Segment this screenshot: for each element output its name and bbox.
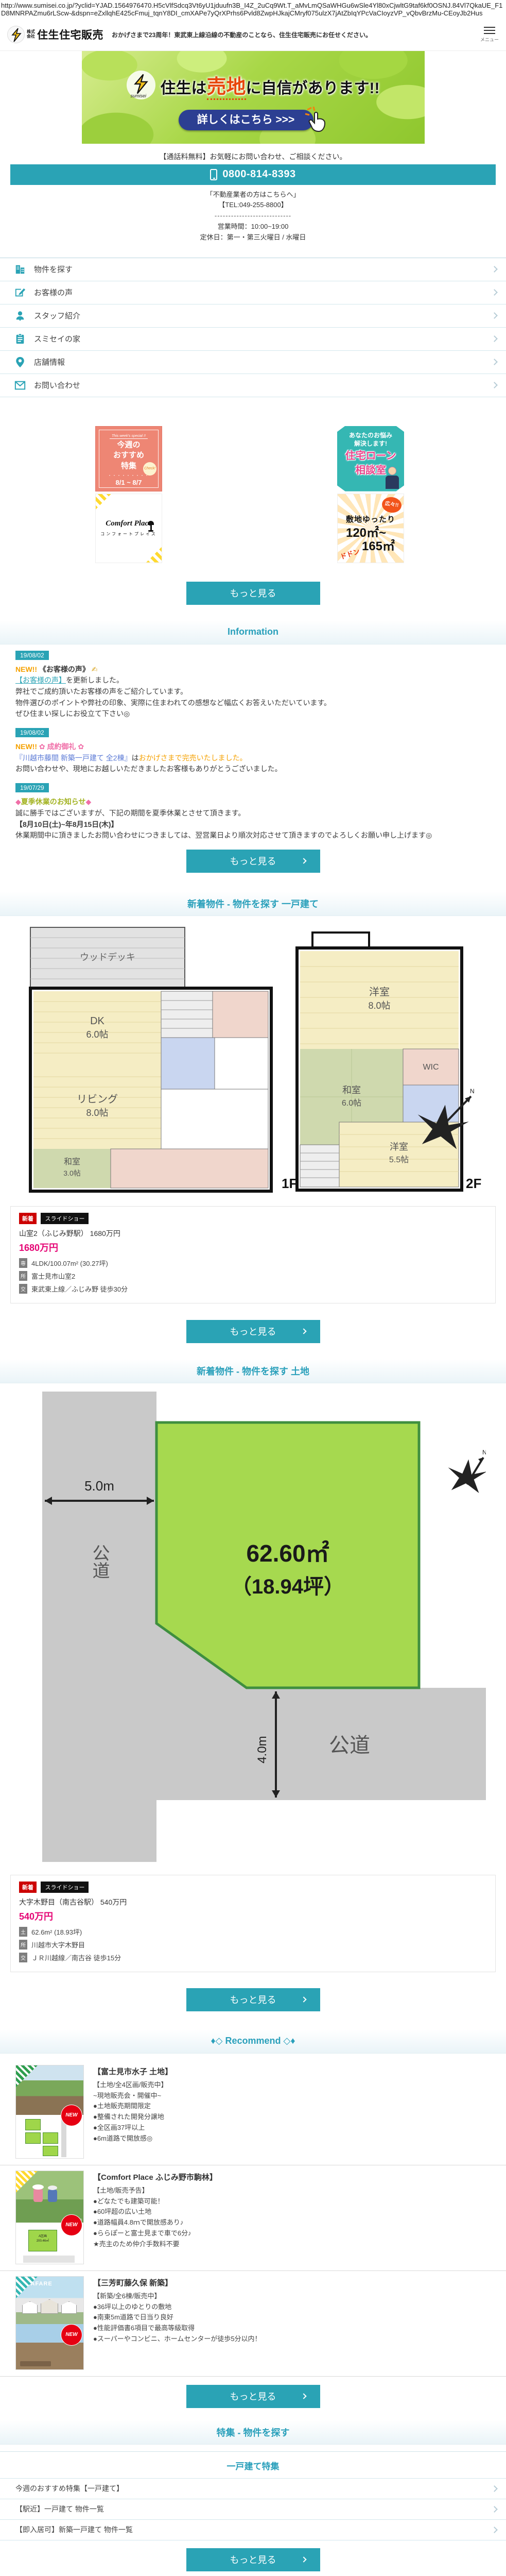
svg-text:4.0m: 4.0m	[255, 1736, 269, 1763]
news-title-line: ◆夏季休業のお知らせ◆	[15, 796, 491, 808]
property-location-line: 所川越市大字木野目	[19, 1940, 487, 1950]
person-pin-icon	[14, 310, 26, 321]
hand-cursor-icon	[304, 107, 327, 136]
comfort-place-kana: コンフォートプレイス	[100, 531, 157, 537]
weekly-line1: 今週の	[99, 440, 158, 450]
main-menu: 物件を探す お客様の声 スタッフ紹介 スミセイの家 店舗情報 お問い合わせ	[0, 258, 506, 397]
recommend-line: ★売主のため仲介手数料不要	[93, 2239, 217, 2250]
svg-text:和室: 和室	[63, 1157, 80, 1166]
house-feature-subheading: 一戸建て特集	[0, 2459, 506, 2472]
phone-call-bar[interactable]: 0800-814-8393	[10, 164, 496, 185]
bolt-logo-icon	[7, 26, 25, 43]
svg-text:（18.94坪）: （18.94坪）	[231, 1575, 344, 1598]
recommend-line: ●整備された開発分譲地	[93, 2112, 172, 2123]
customer-voice-link[interactable]: 【お客様の声】	[15, 676, 66, 684]
recommend-heading-band: ♦◇ Recommend ◇♦	[0, 2029, 506, 2054]
news-body: ぜひ住まい探しにお役立て下さい◎	[15, 708, 491, 720]
lot-size1: 120㎡~	[338, 527, 394, 540]
banner-weekly-special[interactable]: This week's special !! 今週の おすすめ 特集 Check…	[95, 426, 162, 492]
svg-text:1F: 1F	[282, 1176, 297, 1191]
chevron-right-icon	[491, 2527, 498, 2533]
svg-text:WIC: WIC	[423, 1063, 439, 1072]
new-house-heading: 新着物件 - 物件を探す 一戸建て	[187, 897, 319, 910]
recommend-thumbnail: image photo A区画200.46㎡ NEW	[15, 2171, 84, 2264]
news-date-badge: 19/07/29	[15, 783, 49, 792]
svg-text:5.0m: 5.0m	[84, 1478, 114, 1494]
chevron-right-icon	[491, 335, 498, 342]
news-item: 19/08/02 NEW!! ✿ 成約御礼 ✿ 『川越市藤間 新築一戸建て 全2…	[15, 728, 491, 775]
page: http://www.sumisei.co.jp/?yclid=YJAD.156…	[0, 0, 506, 2576]
svg-text:6.0帖: 6.0帖	[341, 1098, 361, 1108]
recommend-line: ~現地販売会・開催中~	[93, 2091, 172, 2102]
recommend-line: ●36坪以上のゆとりの敷地	[93, 2302, 261, 2313]
chevron-right-icon	[491, 359, 498, 365]
property-title: 山室2（ふじみ野駅） 1680万円	[19, 1228, 487, 1239]
lamp-icon	[147, 521, 154, 532]
feature-heading-band: 特集 - 物件を探す	[0, 2420, 506, 2445]
weekly-special-inner: This week's special !! 今週の おすすめ 特集 Check…	[99, 430, 159, 488]
feature-heading: 特集 - 物件を探す	[217, 2426, 290, 2439]
company-logo[interactable]: 株式会社 住生住宅販売	[7, 26, 103, 43]
recommend-line: ●スーパーやコンビニ、ホームセンターが徒歩5分以内！	[93, 2334, 261, 2345]
svg-text:6.0帖: 6.0帖	[86, 1029, 108, 1040]
clipboard-icon	[14, 333, 26, 345]
property-access-line: 交ＪＲ川越線／南古谷 徒歩15分	[19, 1953, 487, 1962]
building-icon	[14, 264, 26, 275]
news-date-badge: 19/08/02	[15, 651, 49, 660]
menu-item-contact[interactable]: お問い合わせ	[0, 374, 506, 397]
loan-top-text: あなたのお悩み解決します!	[337, 431, 404, 448]
header-tagline: おかげさまで23周年！東武東上線沿線の不動産のことなら、住生住宅販売にお任せくだ…	[112, 30, 372, 39]
property-price: 1680万円	[19, 1241, 487, 1254]
hero-title: 住生は売地に自信があります!!	[161, 71, 380, 99]
more-button-land[interactable]: もっと見る	[186, 1988, 320, 2011]
recommend-title: 【富士見市水子 土地】	[93, 2066, 172, 2077]
hamburger-menu-button[interactable]: メニュー	[480, 27, 499, 43]
svg-text:3.0帖: 3.0帖	[63, 1169, 80, 1177]
new-starburst-badge: NEW	[63, 2216, 80, 2234]
svg-text:2F: 2F	[466, 1176, 481, 1191]
weekly-line2: おすすめ	[99, 451, 158, 461]
news-body: 弊社でご成約頂いたお客様の声をご紹介しています。	[15, 686, 491, 698]
more-button-recommend[interactable]: もっと見る	[186, 2385, 320, 2408]
svg-text:8.0帖: 8.0帖	[86, 1108, 108, 1118]
svg-text:N: N	[482, 1449, 486, 1456]
chevron-right-icon	[301, 1997, 306, 2003]
chevron-right-icon	[491, 266, 498, 273]
recommend-text: 【三芳町藤久保 新築】 【新築/全6棟/販売中】 ●36坪以上のゆとりの敷地 ●…	[93, 2276, 261, 2370]
menu-item-staff[interactable]: スタッフ紹介	[0, 304, 506, 328]
pencil-emoji: ✍	[92, 665, 98, 673]
svg-text:62.60㎡: 62.60㎡	[246, 1540, 329, 1567]
feature-row-move-in-ready[interactable]: 【即入居可】新築一戸建て 物件一覧	[0, 2520, 506, 2540]
recommend-line: 【土地/販売予告】	[93, 2185, 217, 2196]
chevron-right-icon	[301, 2394, 306, 2399]
recommend-title: 【三芳町藤久保 新築】	[93, 2277, 261, 2288]
svg-text:5.5帖: 5.5帖	[389, 1155, 408, 1164]
property-badges: 新着 スライドショー	[19, 1882, 487, 1893]
svg-text:8.0帖: 8.0帖	[368, 1001, 390, 1011]
dodon-label: ドドン	[339, 546, 361, 561]
lot-size2: 165㎡	[353, 540, 404, 553]
feature-row-weekly-house[interactable]: 今週のおすすめ特集【一戸建て】	[0, 2479, 506, 2499]
hero-cta-button[interactable]: 詳しくはこちら >>>	[179, 110, 313, 130]
property-title: 大字木野目（南古谷駅） 540万円	[19, 1897, 487, 1907]
recommend-line: ●全区画37坪以上	[93, 2123, 172, 2133]
recommend-text: 【Comfort Place ふじみ野市駒林】 【土地/販売予告】 ●どなたでも…	[93, 2171, 217, 2264]
closure-period: 【8月10日(土)~年8月15日(木)】	[15, 819, 491, 831]
property-card-house[interactable]: 新着 スライドショー 山室2（ふじみ野駅） 1680万円 1680万円 専4LD…	[10, 1206, 496, 1303]
location-tag-icon: 所	[19, 1940, 27, 1950]
more-button-information[interactable]: もっと見る	[186, 850, 320, 873]
banner-large-lot[interactable]: 広々!! 敷地ゆったり 120㎡~ 165㎡ ドドン	[337, 494, 404, 563]
svg-text:リビング: リビング	[77, 1093, 118, 1105]
news-title-line: NEW!! 《お客様の声》 ✍	[15, 664, 491, 675]
recommend-line: ●性能評価書6項目で最高等級取得	[93, 2323, 261, 2334]
check-bubble: Check!	[143, 462, 156, 476]
news-list: 19/08/02 NEW!! 《お客様の声》 ✍ 【お客様の声】を更新しました。…	[0, 645, 506, 841]
feature-row-near-station[interactable]: 【駅近】一戸建て 物件一覧	[0, 2499, 506, 2520]
chevron-right-icon	[491, 2485, 498, 2492]
logo-name-label: 住生住宅販売	[37, 27, 103, 42]
phone-notes: 「不動産業者の方はこちらへ」 【TEL:049-255-8800】 ------…	[0, 190, 506, 243]
news-body: 誠に勝手ではございますが、下記の期間を夏季休業とさせて頂きます。	[15, 808, 491, 819]
svg-text:洋室: 洋室	[390, 1142, 408, 1152]
pencil-square-icon	[14, 287, 26, 298]
phone-free-note: 【通話料無料】お気軽にお問い合わせ、ご相談ください。	[0, 151, 506, 162]
menu-item-label: 店舗情報	[34, 357, 65, 367]
land-tag-icon: 土	[19, 1927, 27, 1937]
url-text: http://www.sumisei.co.jp/?yclid=YJAD.156…	[0, 0, 506, 19]
menu-item-label: 物件を探す	[34, 264, 73, 275]
hero-title-row: sumisei 住生は売地に自信があります!!	[82, 71, 425, 99]
phone-number: 0800-814-8393	[222, 168, 295, 180]
hamburger-icon	[484, 27, 495, 34]
recommend-thumbnail: NEW	[15, 2065, 84, 2159]
menu-item-shop-info[interactable]: 店舗情報	[0, 351, 506, 374]
yellow-stripe-corner	[96, 494, 111, 510]
svg-text:DK: DK	[90, 1015, 104, 1027]
property-card-land[interactable]: 新着 スライドショー 大字木野目（南古谷駅） 540万円 540万円 土62.6…	[10, 1875, 496, 1972]
news-link-line: 【お客様の声】を更新しました。	[15, 675, 491, 686]
weekly-period: 8/1 ~ 8/7	[99, 479, 158, 486]
svg-text:公道: 公道	[90, 1544, 109, 1579]
svg-text:洋室: 洋室	[369, 986, 390, 998]
businessman-illustration	[385, 467, 400, 489]
hamburger-label: メニュー	[480, 36, 499, 43]
hero-brand-label: sumisei	[131, 93, 147, 98]
news-item: 19/08/02 NEW!! 《お客様の声》 ✍ 【お客様の声】を更新しました。…	[15, 651, 491, 720]
new-badge: 新着	[19, 1882, 37, 1893]
recommend-line: ●6m道路で開放感◎	[93, 2133, 172, 2144]
recommend-line: ●どなたでも建築可能！	[93, 2196, 217, 2207]
agent-tel: 【TEL:049-255-8800】	[0, 200, 506, 211]
smartphone-icon	[210, 169, 217, 180]
recommend-line: ●60坪超の広い土地	[93, 2207, 217, 2217]
chevron-right-icon	[491, 312, 498, 319]
property-access-line: 交東武東上線／ふじみ野 徒歩30分	[19, 1284, 487, 1294]
location-tag-icon: 所	[19, 1271, 27, 1281]
chevron-right-icon	[301, 2557, 306, 2563]
new-house-heading-band: 新着物件 - 物件を探す 一戸建て	[0, 892, 506, 916]
hero-title-highlight: 売地	[207, 76, 246, 100]
logo-corp-label: 株式会社	[27, 30, 36, 39]
new-starburst-badge: NEW	[63, 2326, 80, 2344]
new-land-heading: 新着物件 - 物件を探す 土地	[197, 1364, 309, 1378]
recommend-thumbnail: GRAFARE NEW	[15, 2276, 84, 2370]
compass-icon: N	[446, 1449, 486, 1494]
more-button-house[interactable]: もっと見る	[186, 1320, 320, 1343]
information-heading-band: Information	[0, 620, 506, 645]
lot-title: 敷地ゆったり	[338, 514, 404, 524]
news-body: 物件選びのポイントや弊社の印象、実際に住まわれての感想など幅広くお答えいただいて…	[15, 698, 491, 709]
recommend-line: ●道路幅員4.8ｍで開放感あり♪	[93, 2217, 217, 2228]
news-body: お問い合わせや、現地にお越しいただきましたお客様もありがとうございました。	[15, 764, 491, 775]
svg-text:公道: 公道	[329, 1734, 370, 1757]
recommend-item-fujikubo[interactable]: GRAFARE NEW 【三芳町藤久保 新築】 【新築/全6棟/販売中】 ●36…	[0, 2271, 506, 2377]
property-badges: 新着 スライドショー	[19, 1213, 487, 1224]
dashes-divider: ----------------------------	[0, 211, 506, 222]
ribbon-label: This week's special !!	[110, 434, 148, 439]
recommend-title: 【Comfort Place ふじみ野市駒林】	[93, 2172, 217, 2182]
banner-housing-loan[interactable]: あなたのお悩み解決します! 住宅ローン 相談室	[337, 426, 404, 492]
recommend-item-komabayashi[interactable]: image photo A区画200.46㎡ NEW 【Comfort Plac…	[0, 2165, 506, 2271]
menu-item-customer-voice[interactable]: お客様の声	[0, 281, 506, 304]
recommend-line: 【土地/全4区画/販売中】	[93, 2080, 172, 2091]
recommend-heading: ♦◇ Recommend ◇♦	[211, 2036, 295, 2046]
chevron-right-icon	[301, 858, 306, 864]
chevron-right-icon	[301, 1329, 306, 1334]
comfort-place-logo: Comfort Place	[106, 519, 152, 528]
more-button-banners[interactable]: もっと見る	[186, 582, 320, 605]
recommend-text: 【富士見市水子 土地】 【土地/全4区画/販売中】 ~現地販売会・開催中~ ●土…	[93, 2065, 172, 2159]
information-heading: Information	[228, 626, 278, 637]
property-area-line: 専4LDK/100.07m² (30.27坪)	[19, 1258, 487, 1268]
house-feature-block: 一戸建て特集 今週のおすすめ特集【一戸建て】 【駅近】一戸建て 物件一覧 【即入…	[0, 2451, 506, 2571]
hero-banner[interactable]: sumisei 住生は売地に自信があります!! 詳しくはこちら >>>	[82, 51, 425, 144]
yellow-stripe-corner	[146, 547, 162, 563]
area-tag-icon: 専	[19, 1258, 27, 1268]
news-date-badge: 19/08/02	[15, 728, 49, 737]
hiro-bubble: 広々!!	[381, 496, 403, 514]
recommend-line: ●土地販売期間限定	[93, 2101, 172, 2112]
land-plot-image: 62.60㎡ （18.94坪） 5.0m 公道 4.0m 公道 N	[20, 1392, 486, 1875]
chevron-right-icon	[491, 382, 498, 388]
hero-bolt-icon: sumisei	[127, 71, 155, 99]
loan-main1: 住宅ローン	[337, 450, 404, 462]
slideshow-badge: スライドショー	[41, 1213, 89, 1224]
news-item: 19/07/29 ◆夏季休業のお知らせ◆ 誠に勝手ではございますが、下記の期間を…	[15, 783, 491, 841]
menu-item-label: スミセイの家	[34, 333, 80, 344]
property-price: 540万円	[19, 1909, 487, 1923]
property-location-line: 所富士見市山室2	[19, 1271, 487, 1281]
menu-item-label: スタッフ紹介	[34, 310, 80, 321]
map-pin-icon	[14, 357, 26, 368]
property-area-line: 土62.6m² (18.93坪)	[19, 1927, 487, 1937]
recommend-line: ●南東5m道路で日当り良好	[93, 2312, 261, 2323]
access-tag-icon: 交	[19, 1953, 27, 1962]
business-hours: 営業時間：10:00~19:00	[0, 222, 506, 232]
chevron-right-icon	[491, 2506, 498, 2513]
menu-item-search-property[interactable]: 物件を探す	[0, 258, 506, 281]
envelope-icon	[14, 380, 26, 391]
menu-item-label: お客様の声	[34, 287, 73, 298]
menu-item-sumisei-house[interactable]: スミセイの家	[0, 328, 506, 351]
recommend-line: 【新築/全6棟/販売中】	[93, 2291, 261, 2302]
menu-item-label: お問い合わせ	[34, 380, 80, 391]
news-title-line: NEW!! ✿ 成約御礼 ✿	[15, 741, 491, 753]
recommend-list: NEW 【富士見市水子 土地】 【土地/全4区画/販売中】 ~現地販売会・開催中…	[0, 2060, 506, 2377]
slideshow-badge: スライドショー	[41, 1882, 89, 1893]
recommend-item-mizuko[interactable]: NEW 【富士見市水子 土地】 【土地/全4区画/販売中】 ~現地販売会・開催中…	[0, 2060, 506, 2165]
agent-note: 「不動産業者の方はこちらへ」	[0, 190, 506, 200]
new-starburst-badge: NEW	[63, 2107, 80, 2124]
new-badge: 新着	[19, 1213, 37, 1224]
floorplan-image: ウッドデッキ DK 6.0帖 リビング 8.0帖 和室 3.0帖 1F	[24, 923, 482, 1198]
promo-banner-grid: This week's special !! 今週の おすすめ 特集 Check…	[0, 426, 506, 563]
sold-property-link[interactable]: 『川越市藤間 新築一戸建て 全2棟』	[15, 754, 132, 762]
banner-comfort-place[interactable]: Comfort Place コンフォートプレイス	[95, 494, 162, 563]
more-button-house-feature[interactable]: もっと見る	[186, 2548, 320, 2571]
news-body: 『川越市藤間 新築一戸建て 全2棟』はおかげさまで完売いたしました。	[15, 753, 491, 764]
chevron-right-icon	[491, 289, 498, 296]
recommend-line: ●ららぽーと富士見まで車で6分♪	[93, 2228, 217, 2239]
holiday-note: 定休日：第一・第三火曜日 / 水曜日	[0, 232, 506, 243]
svg-text:N: N	[470, 1088, 475, 1095]
new-land-heading-band: 新着物件 - 物件を探す 土地	[0, 1359, 506, 1383]
site-header: 株式会社 住生住宅販売 おかげさまで23周年！東武東上線沿線の不動産のことなら、…	[0, 19, 506, 51]
news-body: 休業期間中に頂きましたお問い合わせにつきましては、翌営業日より順次対応させて頂き…	[15, 830, 491, 841]
svg-text:ウッドデッキ: ウッドデッキ	[80, 952, 135, 962]
svg-text:和室: 和室	[342, 1085, 361, 1095]
access-tag-icon: 交	[19, 1284, 27, 1294]
